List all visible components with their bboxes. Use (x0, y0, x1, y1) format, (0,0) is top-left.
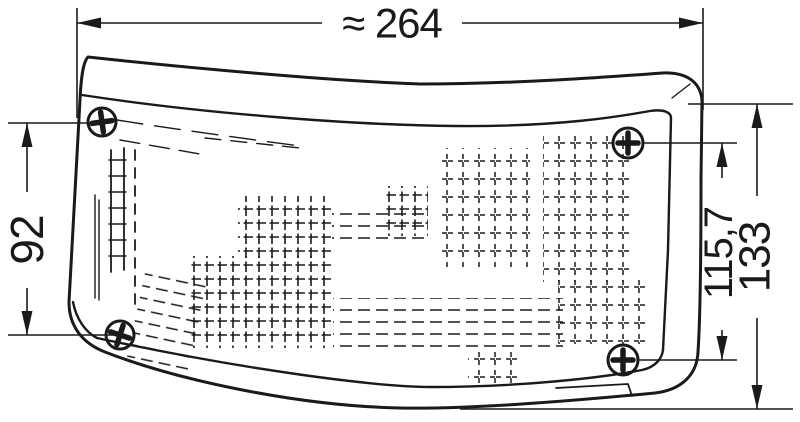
arrowhead-down-icon (717, 336, 728, 360)
ladder-sketch (95, 148, 135, 305)
lens-mesh-texture (95, 120, 646, 386)
lamp-dimension-drawing: ≈ 264 92 115,7 133 (0, 0, 800, 417)
arrowhead-up-icon (717, 143, 728, 167)
dimension-label-top: ≈ 264 (342, 0, 442, 47)
corner-shade-tick (672, 84, 690, 98)
rim-step-line (556, 384, 632, 396)
arrowhead-up-icon (22, 123, 33, 147)
mesh-patch (238, 196, 334, 262)
dash-rows-patch (333, 298, 563, 348)
arrowhead-left-icon (77, 18, 101, 29)
dimension-label-outer: 133 (731, 222, 780, 292)
screw-bottom-right (608, 345, 638, 375)
arrowhead-up-icon (752, 104, 763, 128)
mesh-patch (188, 256, 333, 348)
dimension-label-left: 92 (1, 215, 53, 264)
mesh-patch (468, 352, 520, 386)
mesh-patch (438, 148, 530, 268)
dimension-right-inner: 115,7 (638, 143, 741, 360)
phillips-cross-icon (91, 111, 114, 134)
dimension-left-height: 92 (1, 123, 118, 335)
mesh-patch (558, 278, 646, 344)
screw-top-left (88, 108, 116, 136)
arrowhead-down-icon (752, 385, 763, 409)
mesh-patch (543, 136, 629, 282)
phillips-cross-icon (613, 350, 633, 370)
screw-top-right (613, 128, 643, 158)
dash-rows-patch (127, 268, 211, 372)
arrowhead-right-icon (679, 18, 703, 29)
arrowhead-down-icon (22, 311, 33, 335)
dimension-top-width: ≈ 264 (77, 0, 703, 118)
reflection-dashes (117, 120, 300, 154)
technical-drawing-canvas: ≈ 264 92 115,7 133 (0, 0, 800, 417)
mesh-patch (384, 186, 428, 236)
